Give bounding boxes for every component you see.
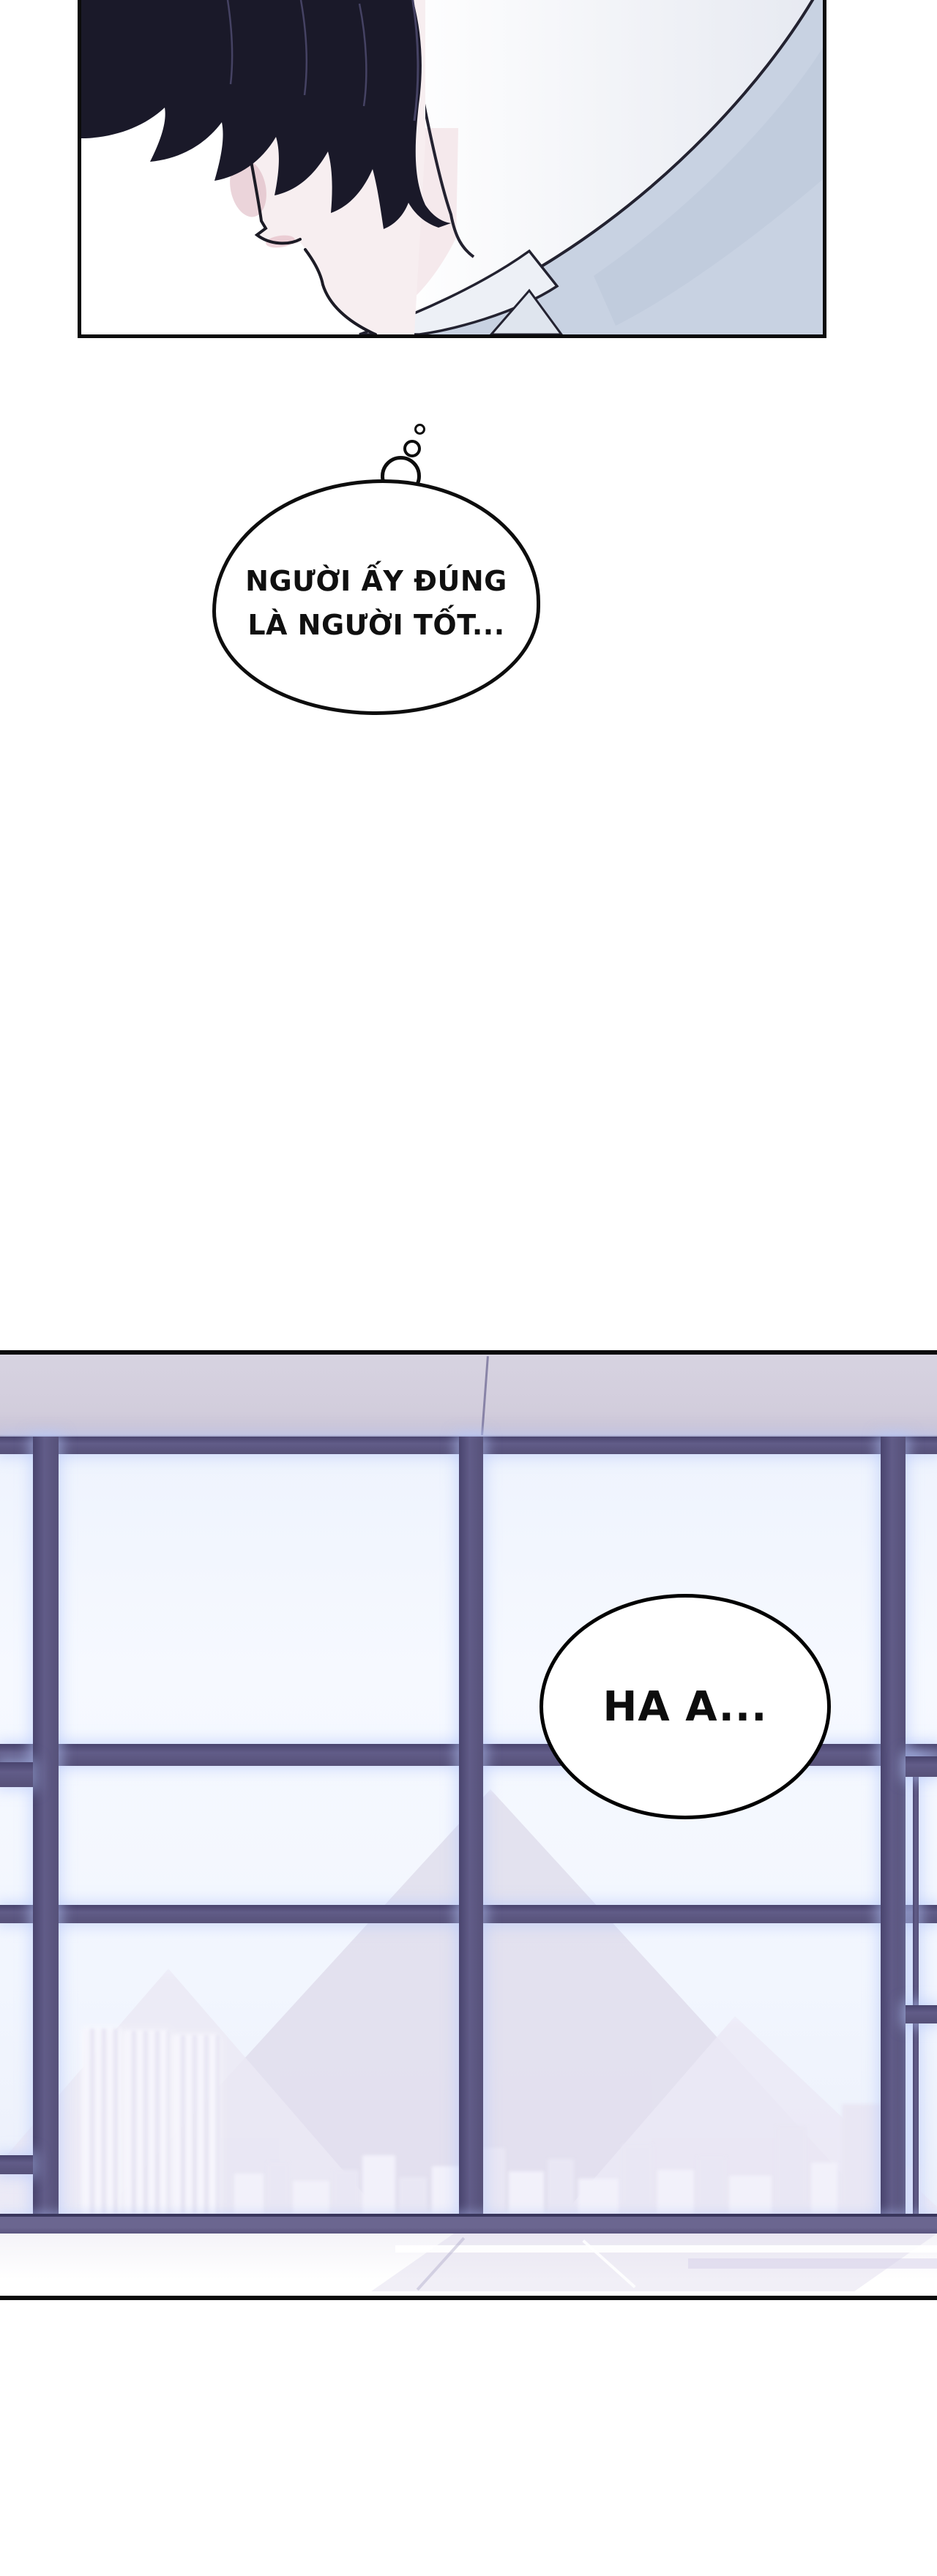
- skyline-building: [509, 2171, 544, 2214]
- side-window-rail: [0, 1762, 33, 1787]
- side-window-rail: [0, 2155, 33, 2174]
- thought-trail-dot-small: [414, 424, 425, 435]
- window-mullion-center: [459, 1437, 483, 2214]
- floor-reflection: [395, 2245, 937, 2253]
- thought-trail-dot-mid: [403, 440, 421, 457]
- skyline-building: [267, 2163, 289, 2214]
- thought-line-2: LÀ NGƯỜI TỐT...: [247, 609, 504, 641]
- skyline-building: [776, 2126, 807, 2214]
- skyline-building: [362, 2155, 395, 2214]
- skyline-building: [811, 2163, 837, 2214]
- thought-bubble-text: NGƯỜI ẤY ĐÚNG LÀ NGƯỜI TỐT...: [245, 559, 507, 647]
- speech-bubble-text: HA A...: [603, 1683, 768, 1731]
- comic-page: NGƯỜI ẤY ĐÚNG LÀ NGƯỜI TỐT...: [0, 0, 937, 2576]
- skyline-building: [697, 2157, 726, 2214]
- skyline-building: [293, 2181, 329, 2214]
- skyline-building: [657, 2170, 694, 2214]
- skyline-tower: [173, 2035, 220, 2214]
- skyline-building: [622, 2144, 653, 2214]
- side-window-frame: [913, 1756, 919, 2214]
- ceiling-seam-line: [481, 1356, 489, 1435]
- panel-character-closeup: [78, 0, 826, 338]
- side-window-rail: [906, 2005, 937, 2023]
- side-window-rail: [906, 1756, 937, 1777]
- skyline-building: [548, 2159, 574, 2214]
- skyline-building: [333, 2170, 359, 2214]
- skyline-building: [729, 2176, 772, 2214]
- character-artwork: [81, 0, 823, 334]
- panel-window-scene: [0, 1350, 937, 2300]
- thought-line-1: NGƯỜI ẤY ĐÚNG: [245, 565, 507, 597]
- window-sill: [0, 2214, 937, 2234]
- skyline-tower: [83, 2029, 121, 2214]
- skyline-building: [399, 2177, 427, 2214]
- floor-reflection: [688, 2258, 937, 2269]
- window-mullion-right: [881, 1437, 906, 2214]
- speech-bubble: HA A...: [540, 1594, 831, 1819]
- floor: [0, 2234, 937, 2291]
- skyline-building: [234, 2173, 264, 2214]
- thought-bubble: NGƯỜI ẤY ĐÚNG LÀ NGƯỜI TỐT...: [212, 479, 540, 715]
- window-mullion-left: [33, 1437, 59, 2214]
- skyline-building: [578, 2179, 619, 2214]
- ceiling: [0, 1355, 937, 1437]
- skyline-tower: [124, 2031, 170, 2214]
